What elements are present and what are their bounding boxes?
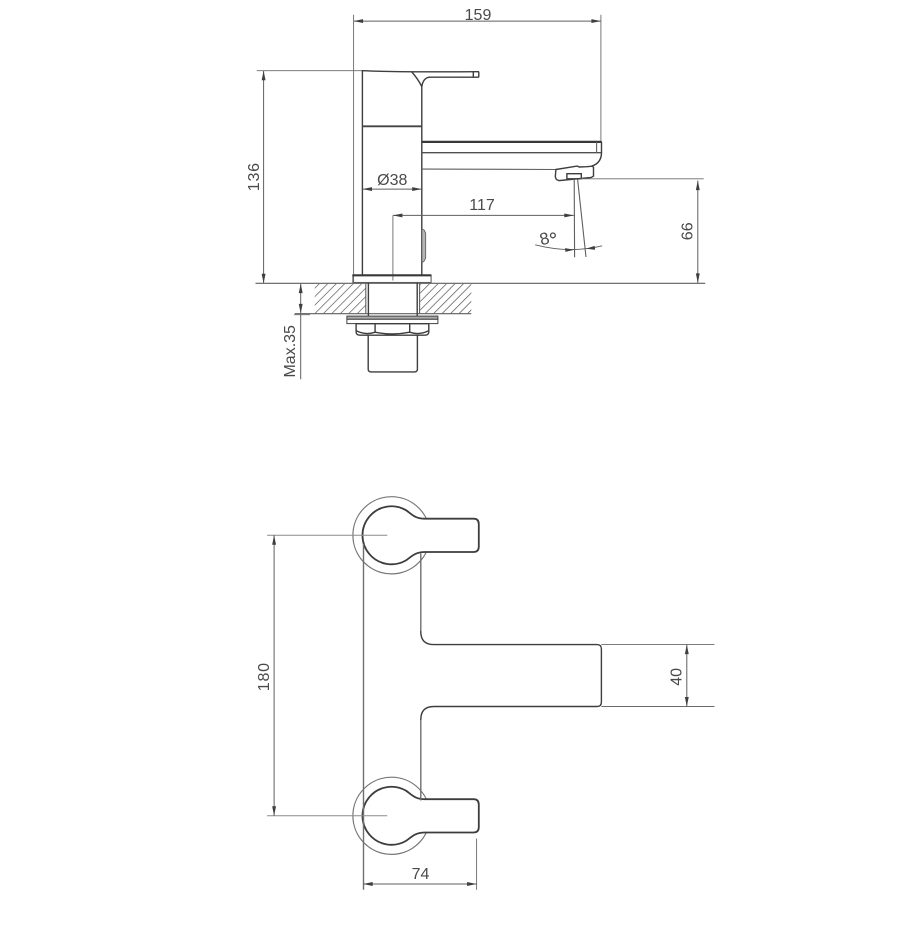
svg-text:117: 117 — [469, 197, 495, 214]
svg-text:74: 74 — [412, 866, 430, 883]
svg-text:Max.35: Max.35 — [282, 325, 299, 378]
svg-text:Ø38: Ø38 — [377, 172, 407, 189]
svg-text:66: 66 — [679, 222, 696, 240]
svg-text:180: 180 — [256, 662, 273, 691]
svg-text:40: 40 — [669, 668, 686, 686]
svg-text:159: 159 — [465, 7, 492, 24]
svg-text:136: 136 — [246, 162, 263, 191]
